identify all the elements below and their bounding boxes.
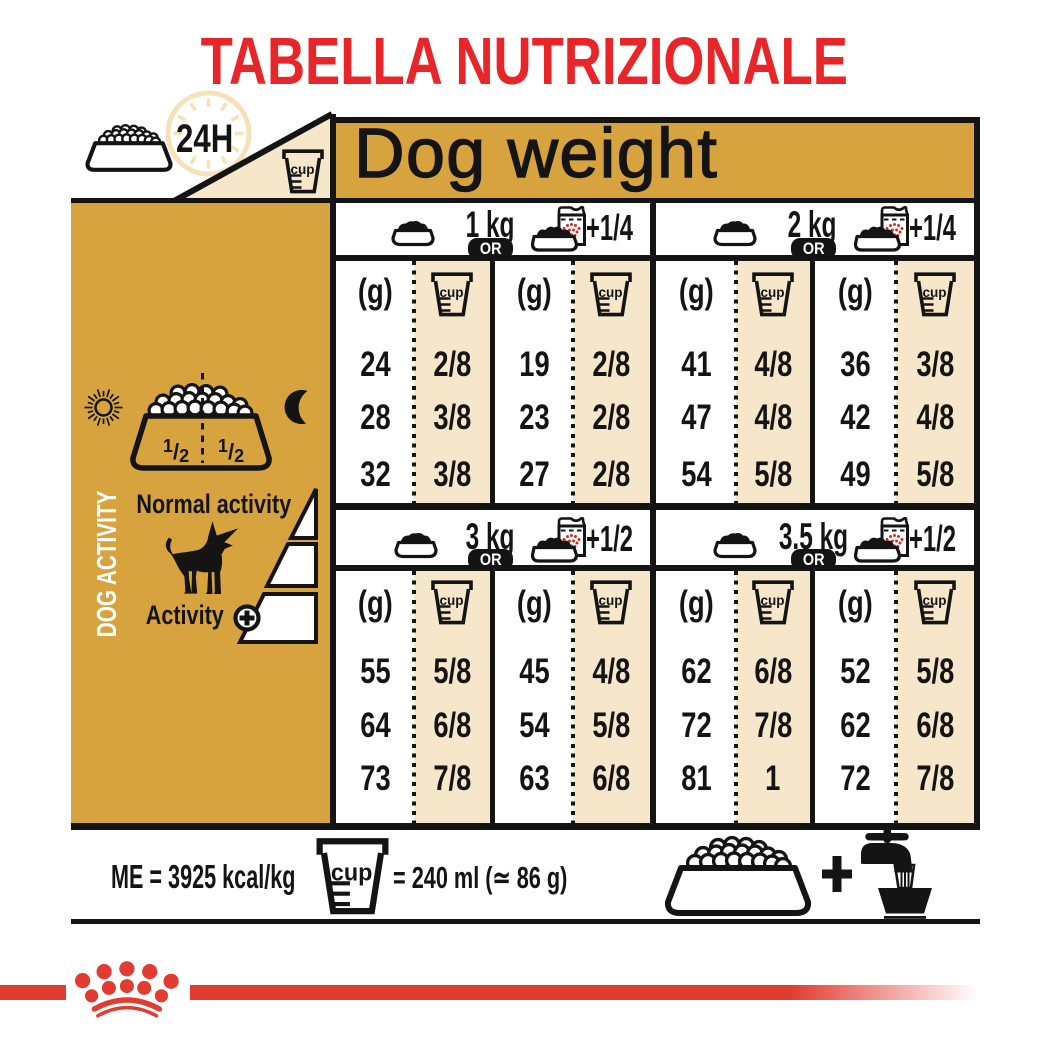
- svg-text:cup: cup: [291, 161, 315, 177]
